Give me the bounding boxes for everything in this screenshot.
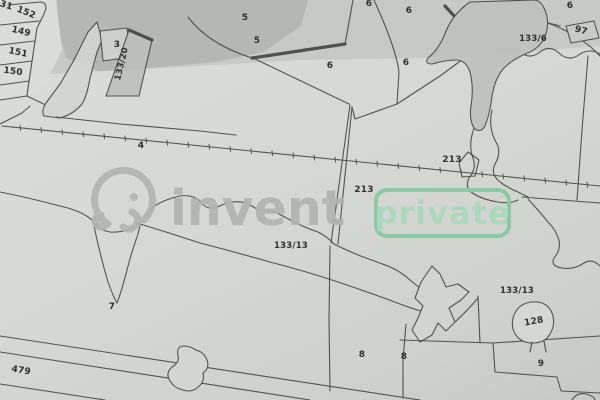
parcel-label-6: 6 xyxy=(327,61,333,71)
parcel-label-6: 6 xyxy=(406,6,412,16)
parcel-label-6: 6 xyxy=(403,58,409,68)
parcel-label-8: 8 xyxy=(359,350,365,360)
parcel-label-6: 6 xyxy=(366,0,372,9)
parcel-label-133-13: 133/13 xyxy=(500,286,534,296)
parcel-label-213: 213 xyxy=(442,155,461,165)
parcel-label-133-6: 133/6 xyxy=(519,34,547,44)
parcel-label-5: 5 xyxy=(254,36,260,46)
parcel-label-5: 5 xyxy=(242,13,248,23)
map-linework xyxy=(0,0,600,400)
parcel-label-8: 8 xyxy=(401,352,407,362)
parcel-label-6: 6 xyxy=(567,1,573,11)
parcel-label-213: 213 xyxy=(354,185,373,195)
parcel-label-4: 4 xyxy=(138,141,144,151)
parcel-label-3: 3 xyxy=(114,40,120,50)
parcel-label-9: 9 xyxy=(538,359,544,369)
parcel-label-7: 7 xyxy=(109,302,115,312)
parcel-label-133-13: 133/13 xyxy=(274,241,308,251)
map-photo: 2311521491511503133/205566666133/6974213… xyxy=(0,0,600,400)
